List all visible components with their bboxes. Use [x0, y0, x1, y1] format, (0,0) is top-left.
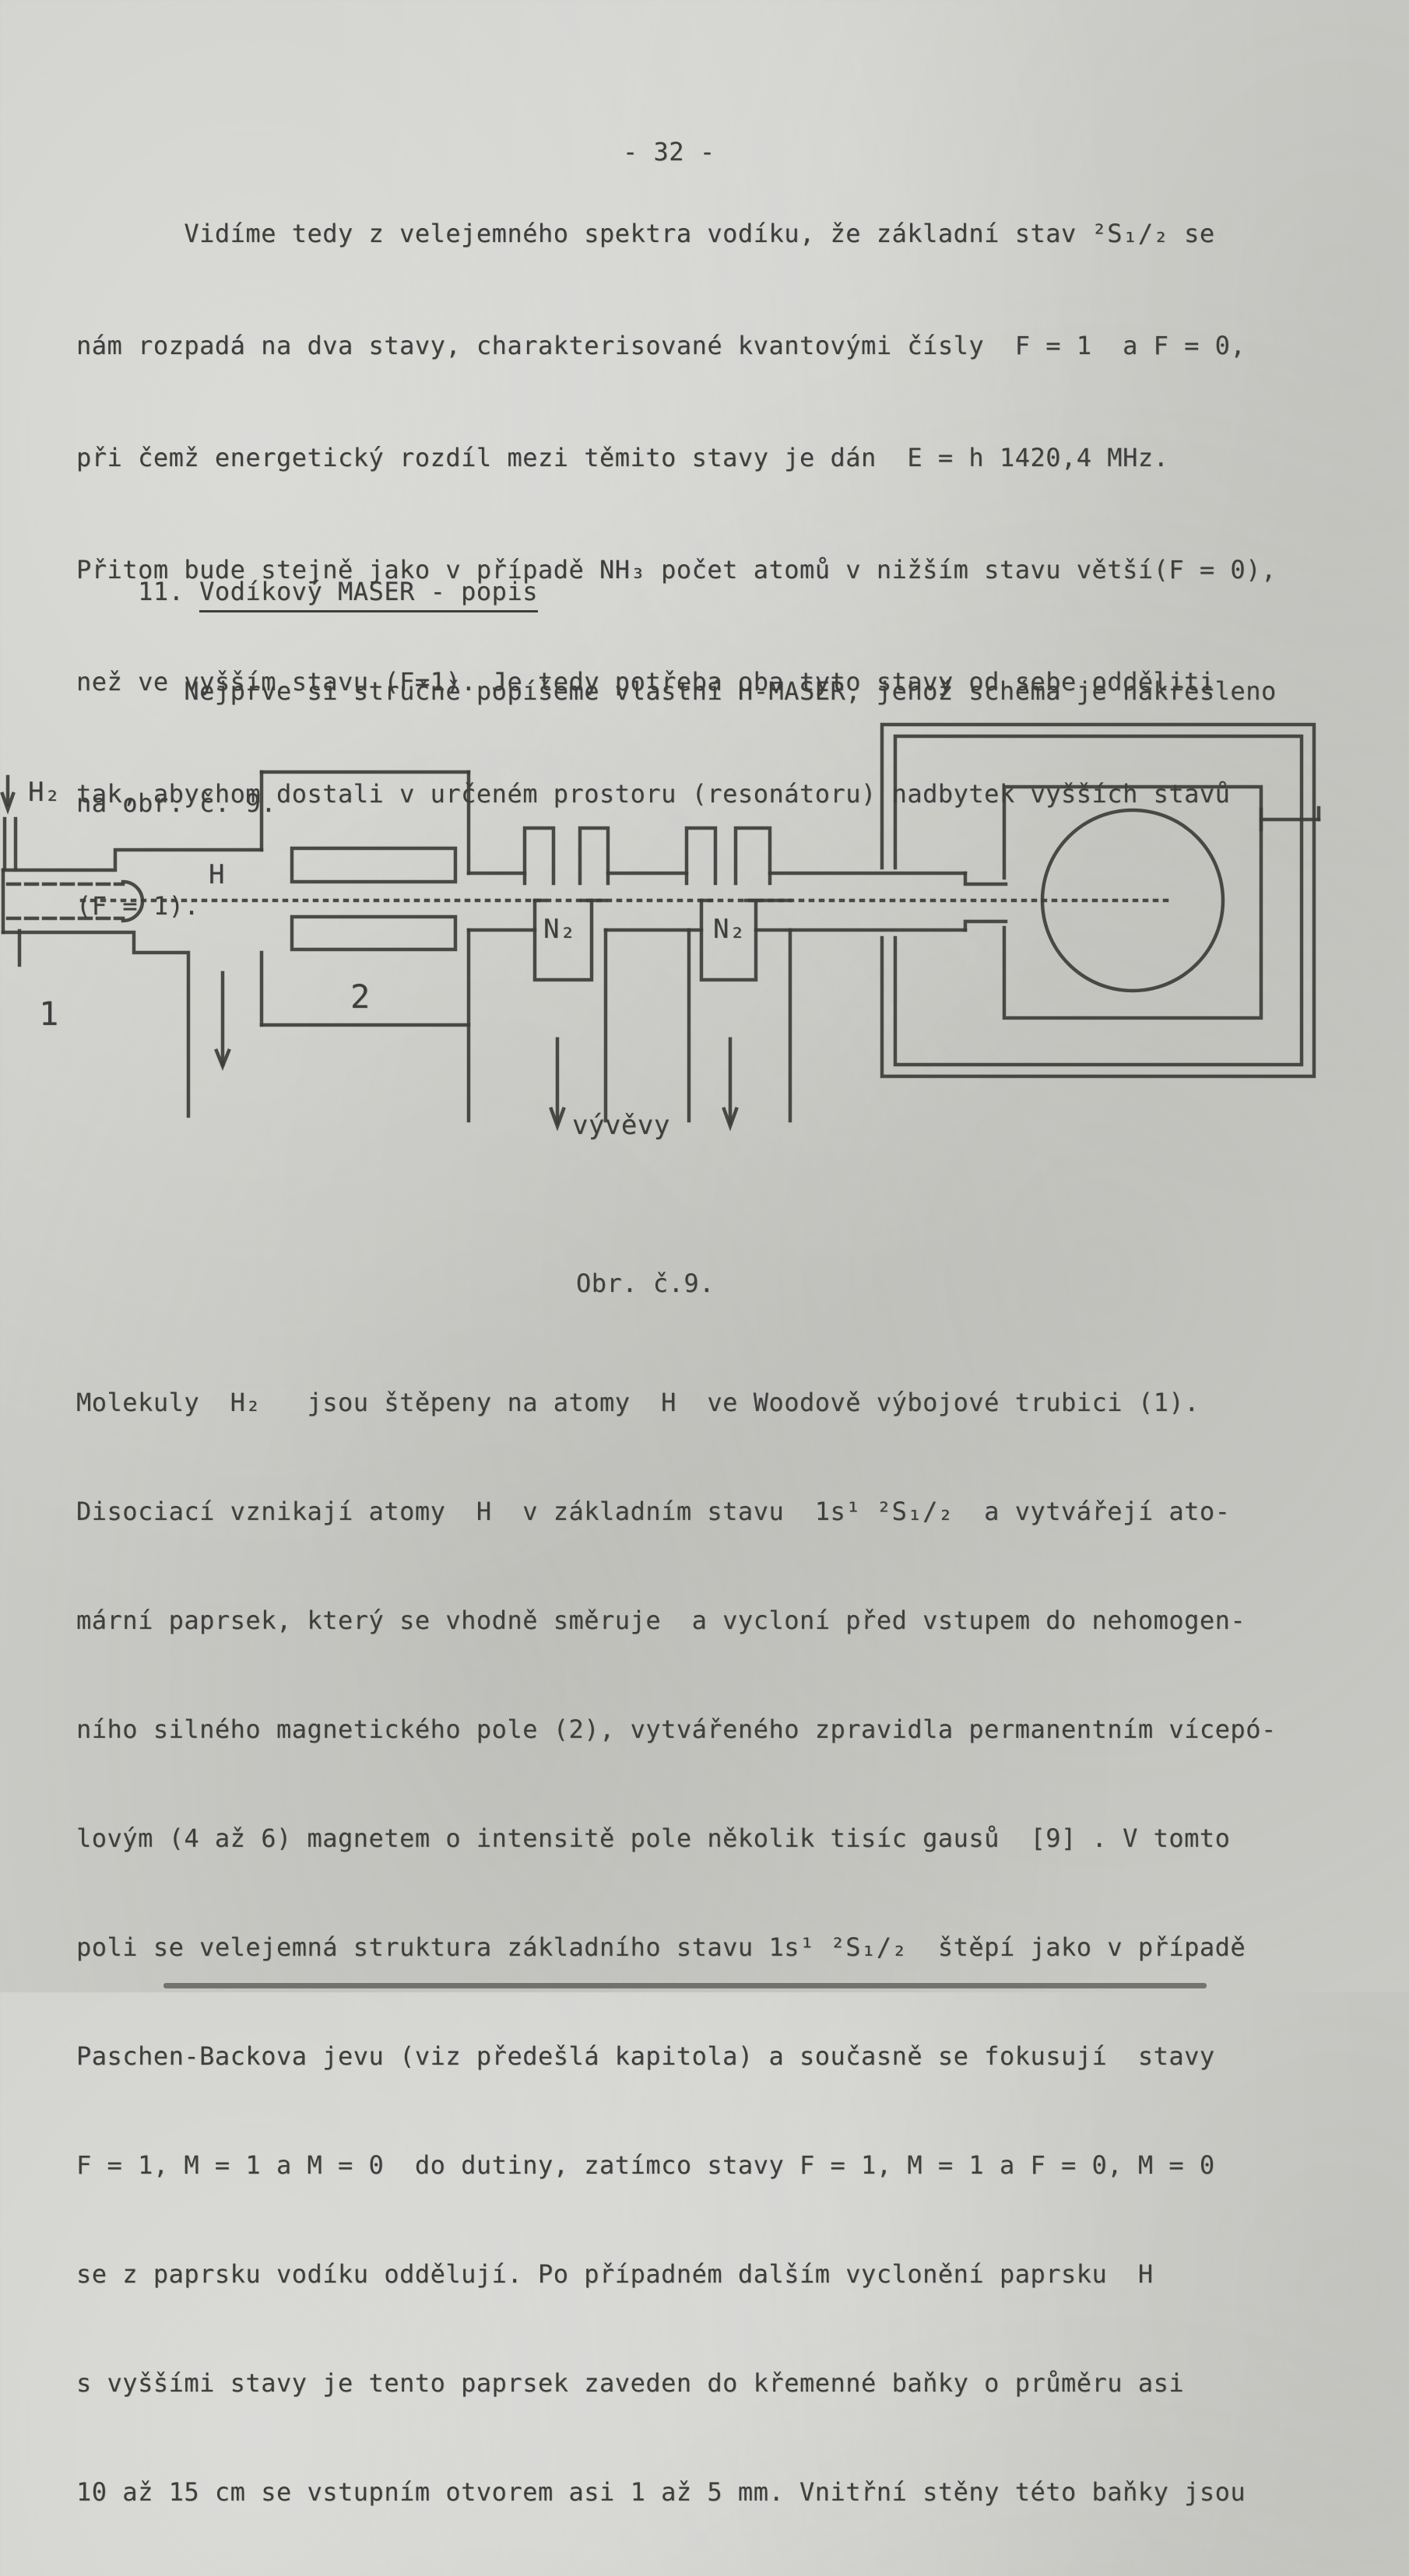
text-line: při čemž energetický rozdíl mezi těmito … — [76, 431, 1378, 484]
text-line: mární paprsek, který se vhodně směruje a… — [76, 1595, 1378, 1645]
magnetic-shield — [882, 725, 1314, 1076]
text-line: F = 1, M = 1 a M = 0 do dutiny, zatímco … — [76, 2140, 1378, 2190]
text-line: 10 až 15 cm se vstupním otvorem asi 1 až… — [76, 2467, 1378, 2517]
label-atoms: H — [209, 859, 225, 890]
text-line: lovým (4 až 6) magnetem o intensitě pole… — [76, 1813, 1378, 1863]
text-line: se z paprsku vodíku oddělují. Po případn… — [76, 2249, 1378, 2299]
label-nitrogen-trap-2: N₂ — [713, 914, 746, 945]
text-line: nám rozpadá na dva stavy, charakterisova… — [76, 319, 1378, 372]
text-line: Molekuly H₂ jsou štěpeny na atomy H ve W… — [76, 1377, 1378, 1427]
label-hydrogen-inlet: H₂ — [28, 777, 61, 808]
text-line: Disociací vznikají atomy H v základním s… — [76, 1486, 1378, 1536]
pump-duct-walls — [606, 930, 790, 1121]
pole-piece-top — [292, 848, 455, 882]
maser-schematic — [0, 716, 1409, 1167]
label-discharge-tube: 1 — [39, 995, 59, 1033]
scanned-document-page: - 32 - Vidíme tedy z velejemného spektra… — [0, 0, 1409, 1992]
output-coupling — [1261, 808, 1319, 830]
text-line: Paschen-Backova jevu (viz předešlá kapit… — [76, 2031, 1378, 2081]
pole-piece-bottom — [292, 917, 455, 949]
page-edge-shadow — [163, 1983, 1207, 1988]
figure-caption: Obr. č.9. — [576, 1269, 715, 1298]
text-line: Vidíme tedy z velejemného spektra vodíku… — [76, 207, 1378, 260]
magnet-chamber — [262, 772, 469, 1121]
resonator-cavity — [965, 787, 1261, 1018]
hydrogen-inlet-arrow — [2, 777, 16, 869]
text-line: poli se velejemná struktura základního s… — [76, 1922, 1378, 1972]
text-line: s vyššími stavy je tento paprsek zaveden… — [76, 2358, 1378, 2408]
label-magnet: 2 — [350, 977, 371, 1016]
source-pump-arrow — [216, 973, 229, 1066]
text-line: Nejprve si stručně popíšeme vlastní H-MA… — [76, 665, 1378, 718]
label-nitrogen-trap-1: N₂ — [543, 914, 576, 945]
text-line: ního silného magnetického pole (2), vytv… — [76, 1704, 1378, 1754]
label-pumps: vývěvy — [572, 1110, 670, 1141]
collimator-baffles — [469, 828, 965, 883]
paragraph-2: Molekuly H₂ jsou štěpeny na atomy H ve W… — [76, 1318, 1378, 2576]
section-number: 11. — [138, 577, 199, 606]
